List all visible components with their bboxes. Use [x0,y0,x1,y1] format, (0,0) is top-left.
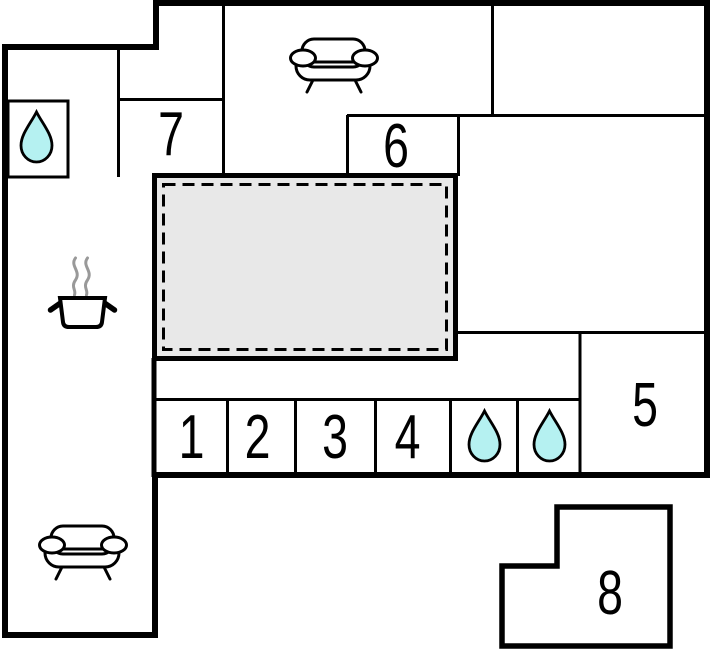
room-5-label: 5 [632,369,658,439]
room-4-label: 4 [395,401,421,471]
terrace-area [155,176,456,359]
room-1-label: 1 [179,401,205,471]
floor-plan: 1 2 3 4 5 6 7 8 [0,0,712,652]
room-7-label: 7 [158,98,184,168]
room-8-label: 8 [597,557,623,627]
room-6-label: 6 [383,110,409,180]
terrace [155,176,456,359]
room-3-label: 3 [322,401,348,471]
room-2-label: 2 [245,401,271,471]
